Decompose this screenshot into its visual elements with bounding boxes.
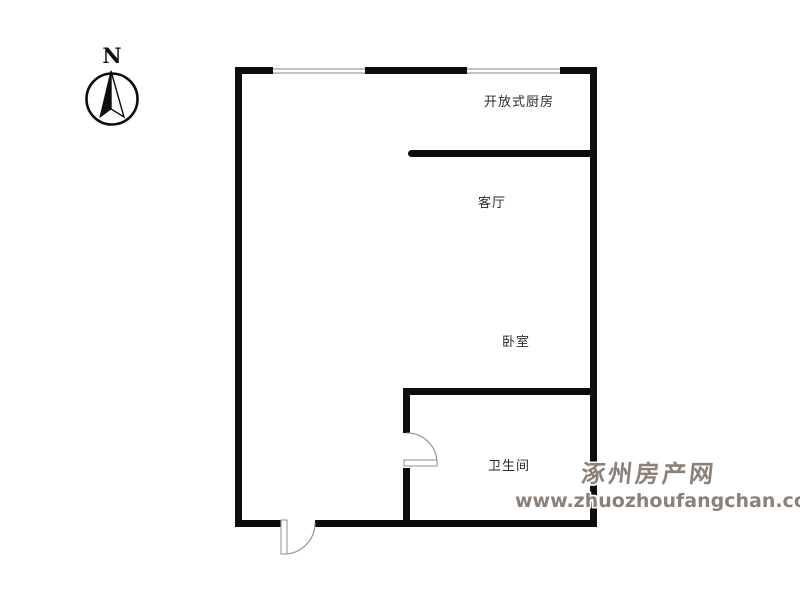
compass-north-label: N	[84, 44, 140, 68]
compass: N	[84, 44, 140, 128]
room-label-bathroom: 卫生间	[488, 455, 530, 474]
bathroom-door-swing-icon	[404, 433, 437, 466]
wall-bathroom-left-lower	[403, 468, 410, 527]
watermark: 涿州房产网 www.zhuozhoufangchan.com	[515, 454, 783, 512]
room-label-kitchen: 开放式厨房	[484, 91, 554, 110]
wall-bathroom-top	[403, 388, 597, 395]
window-top-right	[467, 68, 560, 74]
wall-bottom-segment-right	[315, 520, 597, 527]
entry-door-swing-icon	[281, 520, 315, 554]
watermark-site-url: www.zhuozhoufangchan.com	[515, 490, 783, 512]
window-top-left	[273, 68, 365, 74]
wall-bathroom-left-upper	[403, 388, 410, 433]
wall-bottom-segment-left	[235, 520, 281, 527]
floorplan-canvas: N 开放式厨房 客厅 卧室 卫生间 涿州房产网	[0, 0, 800, 600]
watermark-site-name: 涿州房产网	[513, 454, 785, 489]
room-label-bedroom: 卧室	[502, 331, 530, 350]
wall-right	[590, 67, 597, 527]
wall-top-segment-middle	[365, 67, 467, 74]
wall-left	[235, 67, 242, 527]
room-label-living: 客厅	[478, 192, 506, 211]
wall-kitchen-divider	[408, 150, 597, 157]
compass-rose-icon	[84, 70, 140, 128]
